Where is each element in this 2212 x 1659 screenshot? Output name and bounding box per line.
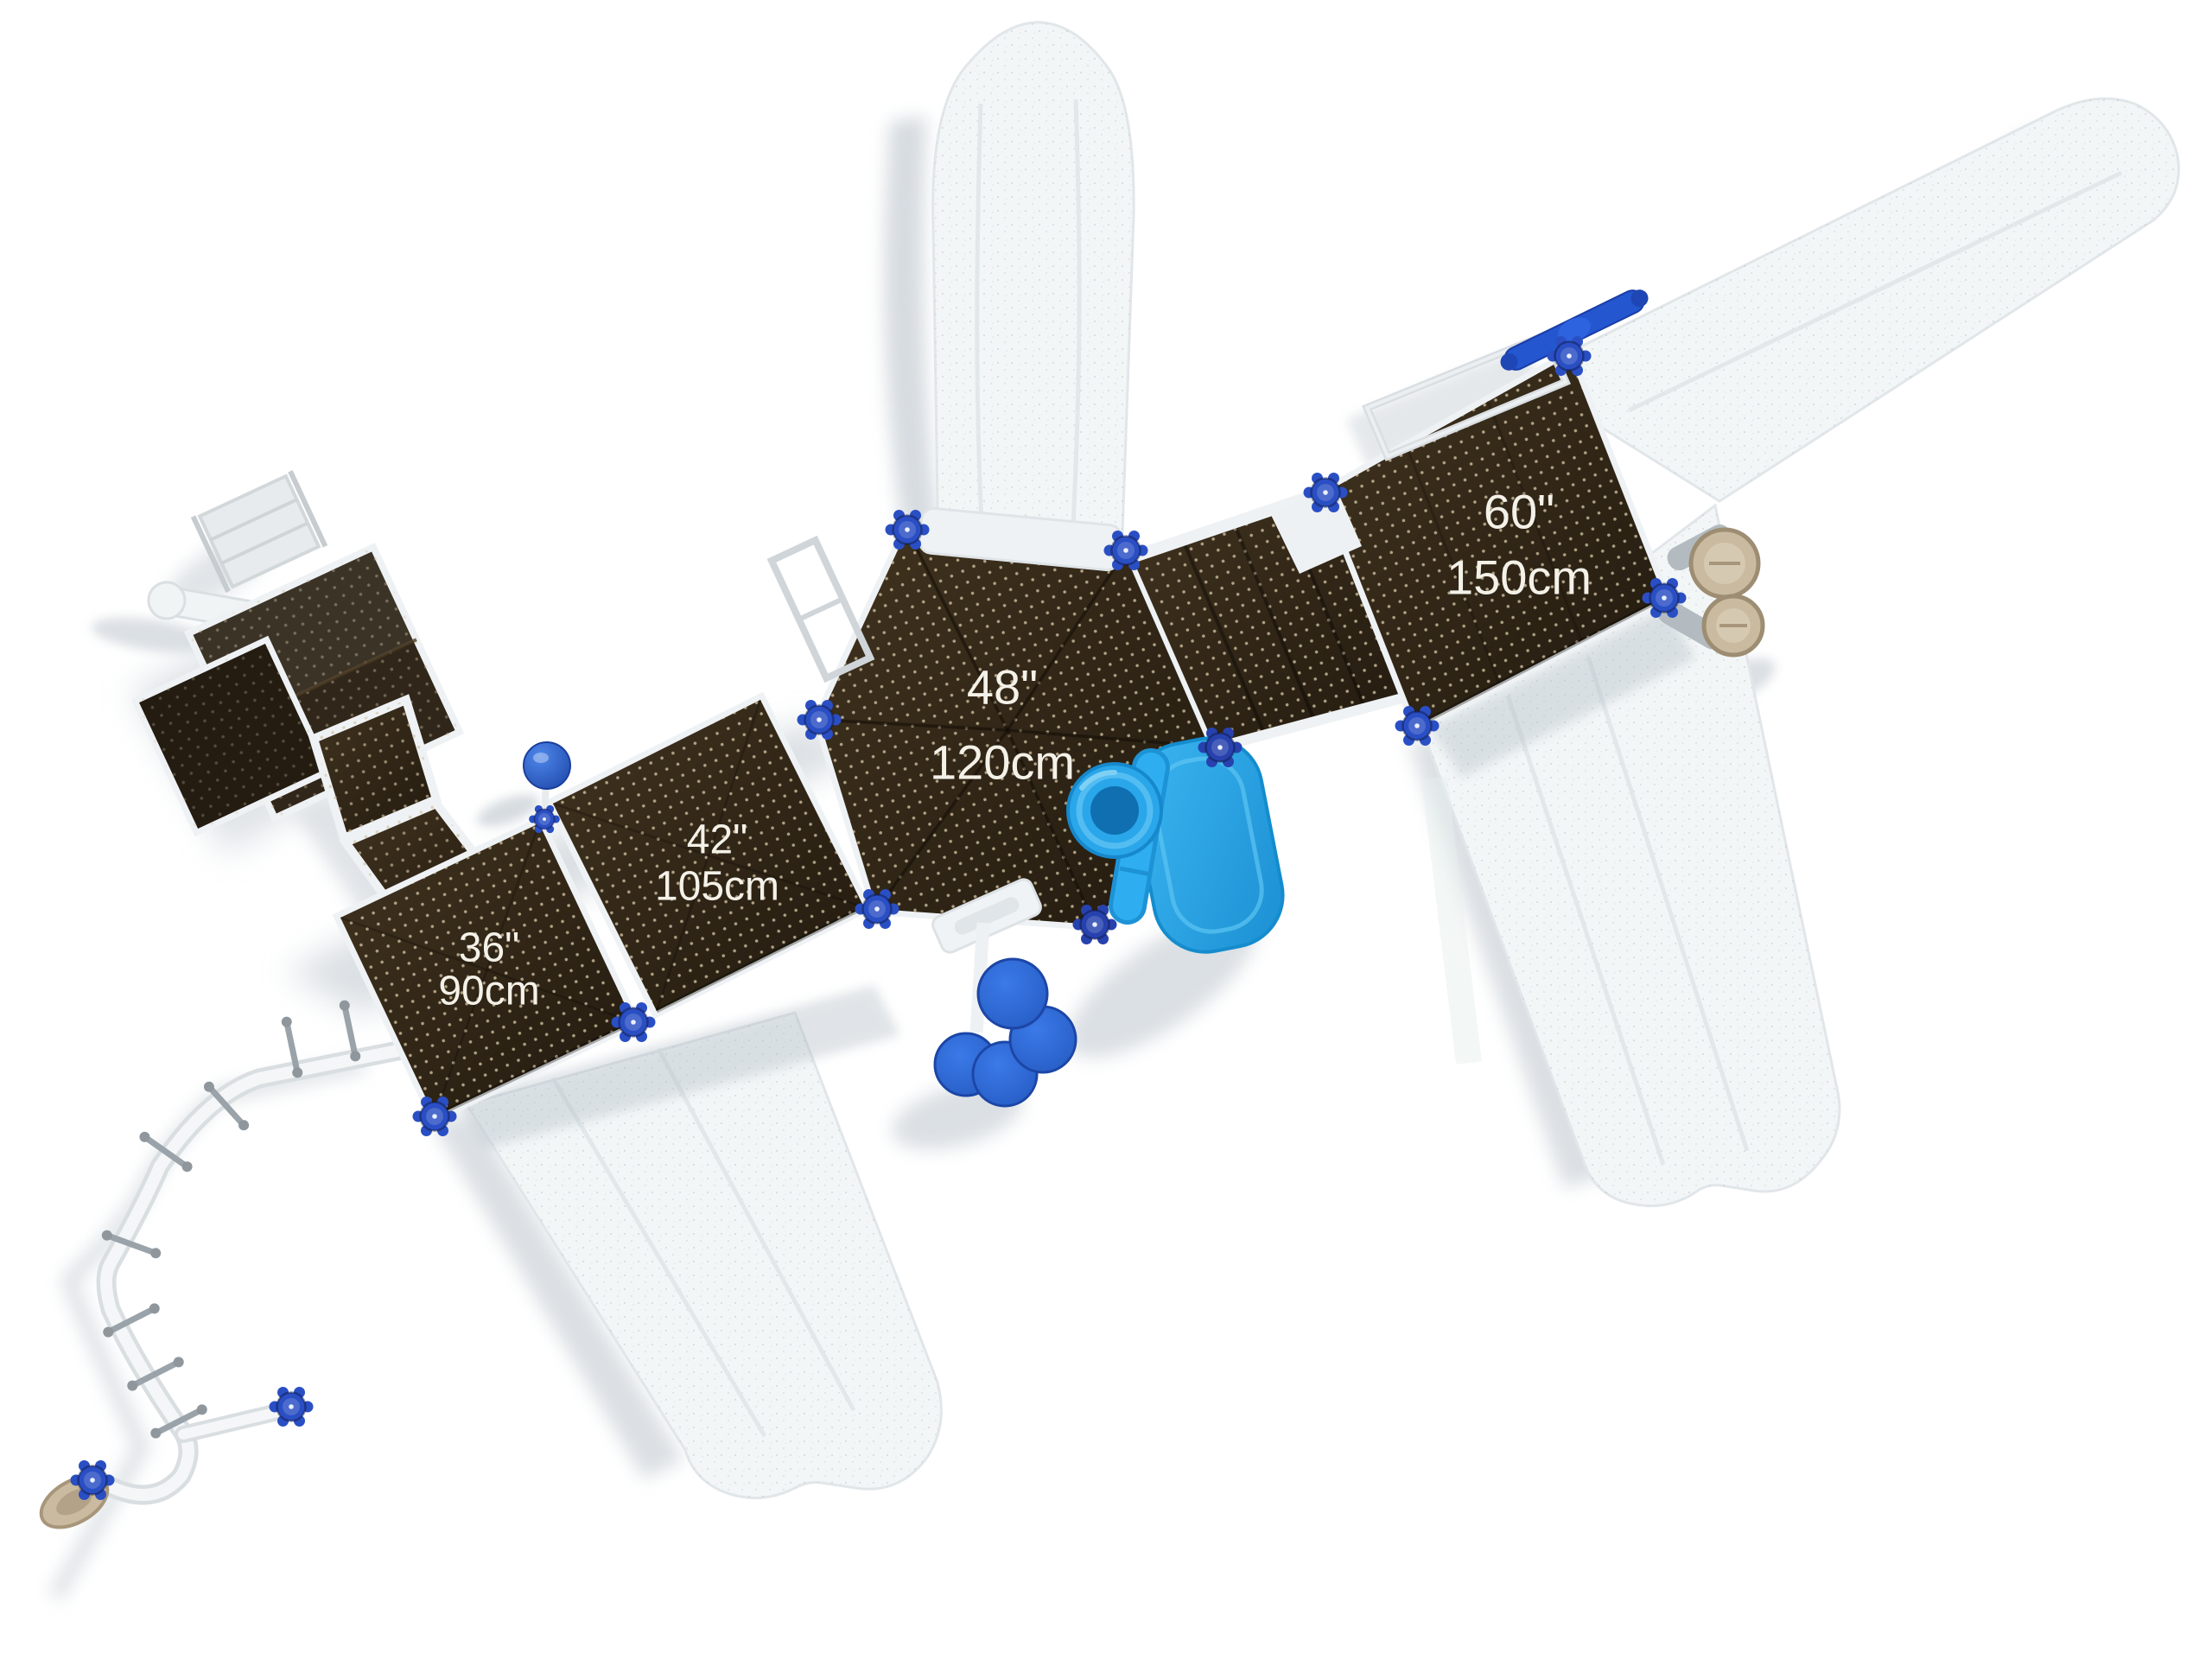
deck-48-height-label: 48"	[967, 660, 1038, 715]
deck-42-height-label: 42"	[687, 817, 747, 863]
slide-leg-north	[933, 22, 1134, 569]
deck-60-metric-label: 150cm	[1446, 550, 1592, 605]
slide-leg-northeast	[1580, 99, 2178, 501]
deck-60-height-label: 60"	[1484, 485, 1554, 539]
deck-42-metric-label: 105cm	[655, 864, 779, 910]
playground-top-view: 36" 90cm 42" 105cm 48" 120cm 60" 150cm	[0, 0, 2212, 1659]
playground-render: 36" 90cm 42" 105cm 48" 120cm 60" 150cm	[0, 0, 2212, 1659]
deck-36-height-label: 36"	[459, 925, 519, 971]
stepper-disc[interactable]	[978, 959, 1047, 1028]
deck-48-metric-label: 120cm	[930, 735, 1075, 790]
climber-pole-highlight	[97, 1049, 406, 1495]
climber-pole	[97, 1049, 406, 1495]
deck-36-metric-label: 90cm	[438, 969, 539, 1014]
